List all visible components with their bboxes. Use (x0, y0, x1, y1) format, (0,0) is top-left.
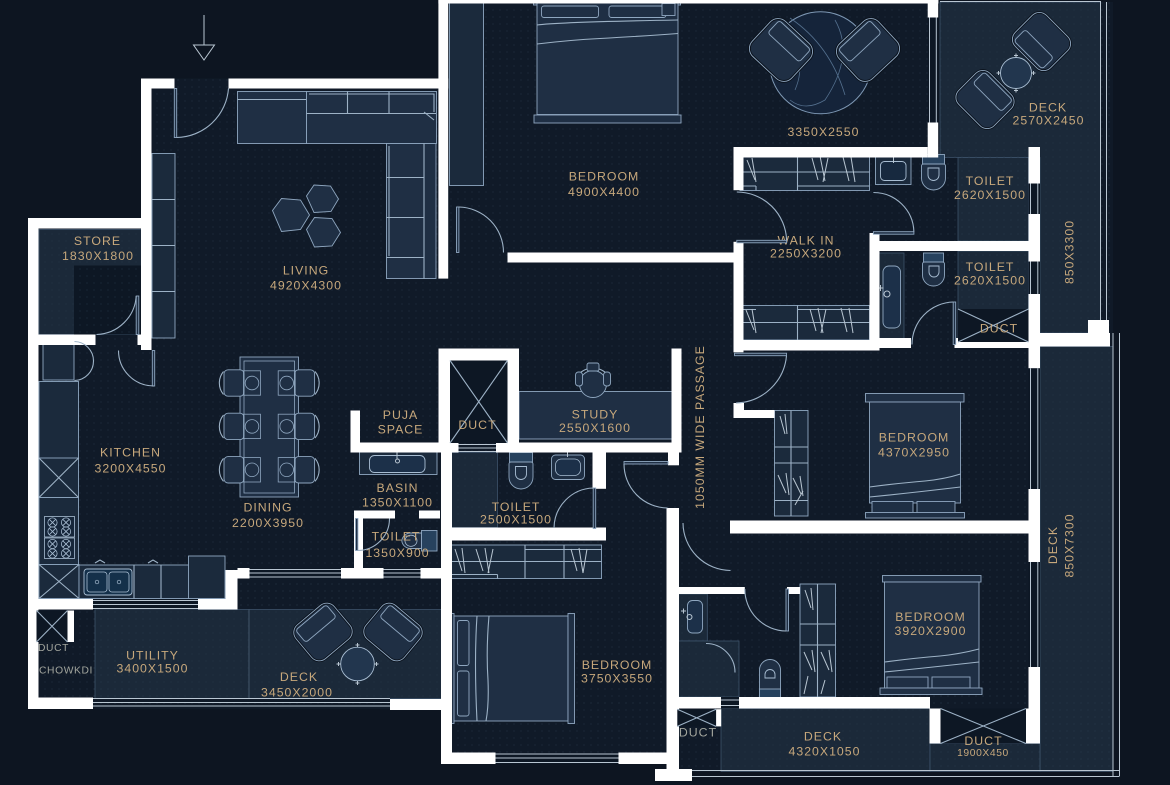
svg-text:3200X4550: 3200X4550 (95, 462, 167, 476)
svg-text:TOILET: TOILET (966, 260, 1015, 274)
svg-text:1350X1100: 1350X1100 (362, 496, 433, 510)
svg-text:1900X450: 1900X450 (957, 748, 1009, 759)
svg-text:2570X2450: 2570X2450 (1013, 114, 1085, 128)
svg-text:2250X3200: 2250X3200 (770, 247, 842, 261)
svg-text:4920X4300: 4920X4300 (270, 279, 342, 293)
svg-text:850X7300: 850X7300 (1063, 513, 1077, 577)
svg-text:3350X2550: 3350X2550 (788, 125, 860, 139)
svg-text:DINING: DINING (243, 501, 292, 515)
svg-text:1050MM WIDE PASSAGE: 1050MM WIDE PASSAGE (693, 345, 707, 509)
svg-text:DECK: DECK (280, 670, 318, 684)
svg-text:4320X1050: 4320X1050 (789, 745, 861, 759)
svg-text:1830X1800: 1830X1800 (62, 249, 134, 263)
svg-text:DECK: DECK (1029, 101, 1067, 115)
svg-text:BEDROOM: BEDROOM (895, 610, 966, 624)
svg-text:1350X900: 1350X900 (365, 546, 429, 560)
svg-text:DECK: DECK (804, 730, 842, 744)
svg-text:KITCHEN: KITCHEN (100, 446, 161, 460)
svg-text:2620X1500: 2620X1500 (954, 188, 1026, 202)
svg-text:DUCT: DUCT (980, 322, 1018, 336)
svg-text:3920X2900: 3920X2900 (895, 624, 967, 638)
svg-text:DUCT: DUCT (458, 418, 496, 432)
svg-text:4900X4400: 4900X4400 (568, 185, 640, 199)
svg-text:2200X3950: 2200X3950 (232, 516, 304, 530)
svg-text:2620X1500: 2620X1500 (954, 274, 1026, 288)
svg-text:BEDROOM: BEDROOM (879, 431, 950, 445)
svg-text:STUDY: STUDY (572, 408, 619, 422)
svg-text:DECK: DECK (1046, 526, 1060, 564)
svg-text:TOILET: TOILET (966, 174, 1015, 188)
svg-text:LIVING: LIVING (283, 264, 329, 278)
svg-text:TOILET: TOILET (372, 530, 421, 544)
svg-text:DUCT: DUCT (38, 643, 69, 654)
svg-text:3750X3550: 3750X3550 (581, 672, 653, 686)
svg-text:BASIN: BASIN (377, 481, 419, 495)
svg-text:2500X1500: 2500X1500 (480, 513, 552, 527)
svg-text:DUCT: DUCT (679, 726, 717, 740)
svg-text:SPACE: SPACE (378, 423, 424, 437)
svg-text:UTILITY: UTILITY (126, 649, 179, 663)
svg-text:3450X2000: 3450X2000 (261, 686, 333, 700)
svg-text:BEDROOM: BEDROOM (582, 658, 653, 672)
svg-text:850X3300: 850X3300 (1063, 220, 1077, 284)
svg-text:STORE: STORE (74, 234, 121, 248)
svg-text:CHOWKDI: CHOWKDI (39, 666, 93, 677)
svg-text:3400X1500: 3400X1500 (117, 662, 189, 676)
svg-text:PUJA: PUJA (383, 408, 418, 422)
svg-text:2550X1600: 2550X1600 (559, 421, 631, 435)
svg-text:BEDROOM: BEDROOM (569, 170, 640, 184)
svg-text:DUCT: DUCT (964, 734, 1002, 748)
svg-text:4370X2950: 4370X2950 (878, 446, 950, 460)
